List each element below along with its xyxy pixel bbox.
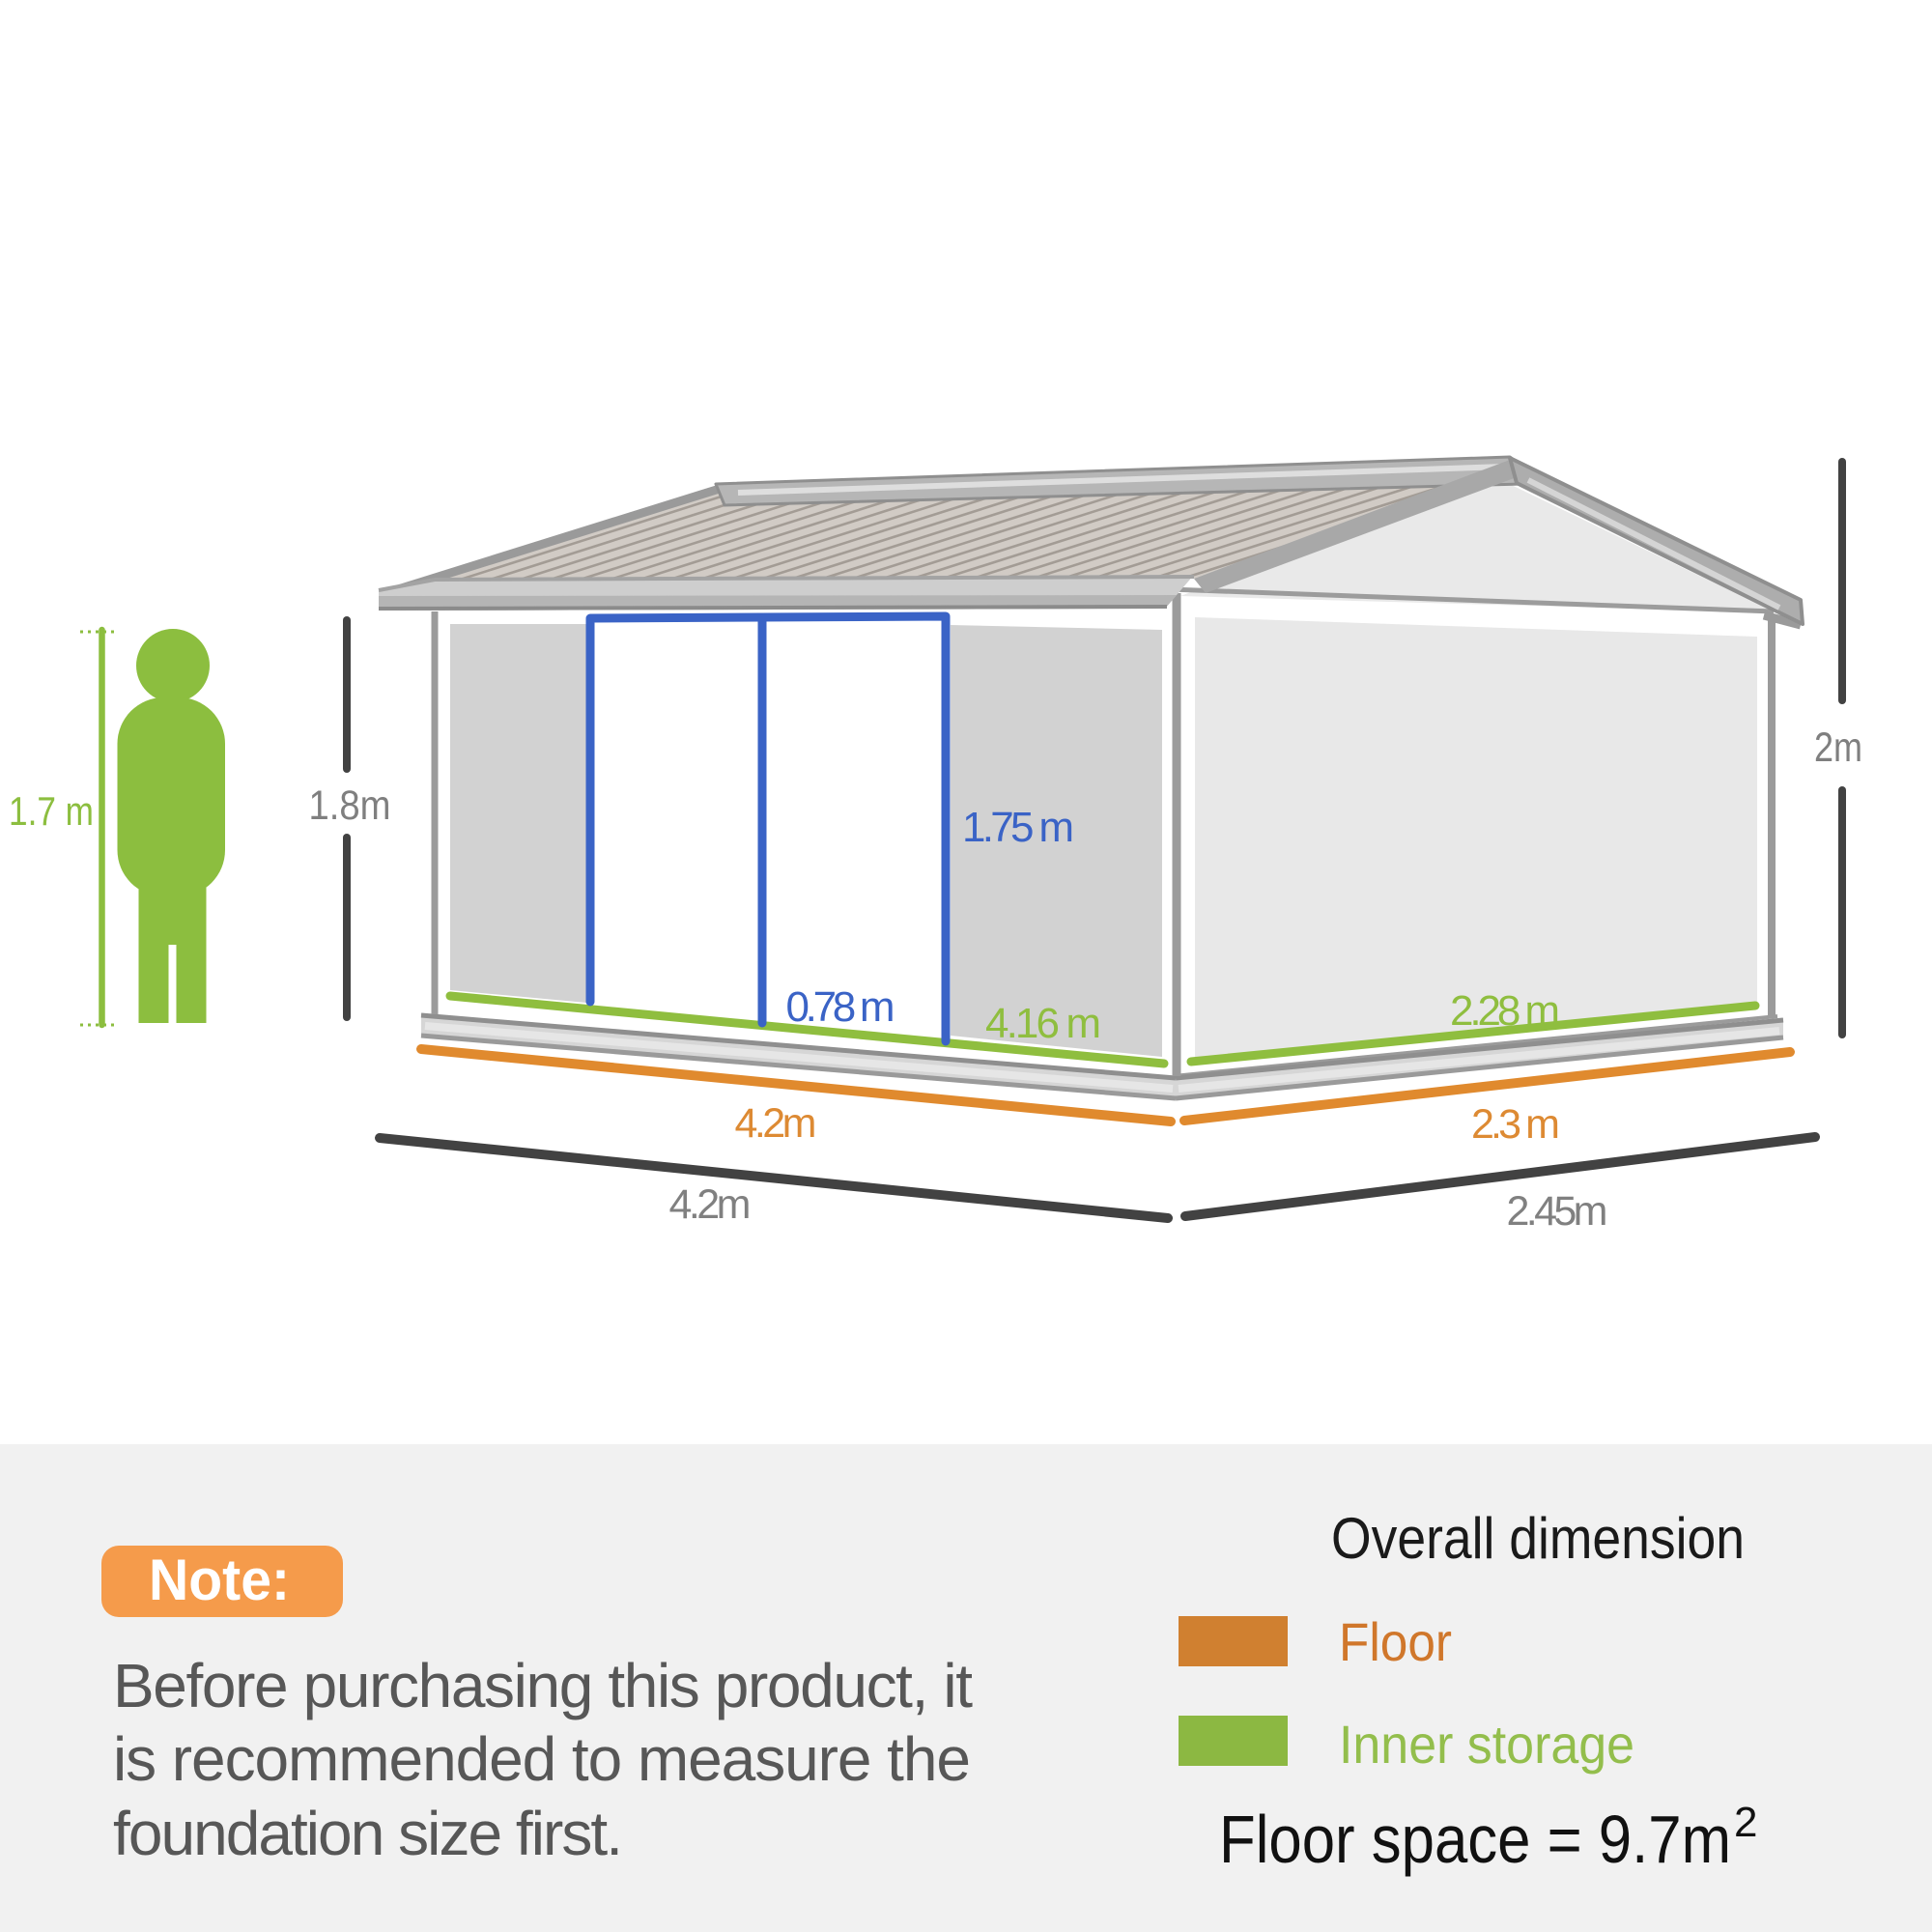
svg-text:1.75 m: 1.75 m: [962, 804, 1074, 851]
svg-text:2.28 m: 2.28 m: [1450, 987, 1560, 1035]
svg-text:2m: 2m: [1814, 724, 1862, 771]
svg-text:4.2m: 4.2m: [669, 1181, 752, 1228]
svg-text:Floor: Floor: [1339, 1611, 1452, 1672]
svg-text:2: 2: [1734, 1799, 1757, 1846]
svg-text:1.8m: 1.8m: [309, 782, 391, 829]
svg-text:0.78 m: 0.78 m: [786, 983, 895, 1031]
svg-text:foundation size first.: foundation size first.: [113, 1799, 623, 1868]
svg-text:2.3 m: 2.3 m: [1471, 1101, 1560, 1148]
svg-text:Inner storage: Inner storage: [1339, 1714, 1634, 1775]
svg-text:Overall dimension: Overall dimension: [1331, 1506, 1745, 1571]
svg-text:Floor space = 9.7m: Floor space = 9.7m: [1219, 1802, 1731, 1877]
svg-text:1.7 m: 1.7 m: [9, 788, 94, 834]
svg-text:4.2m: 4.2m: [735, 1100, 817, 1147]
svg-text:is recommended to measure the: is recommended to measure the: [113, 1724, 971, 1794]
svg-text:2.45m: 2.45m: [1507, 1188, 1608, 1235]
svg-text:4.16 m: 4.16 m: [985, 1000, 1101, 1047]
svg-text:Before purchasing this product: Before purchasing this product, it: [113, 1651, 973, 1720]
svg-text:Note:: Note:: [149, 1548, 290, 1612]
